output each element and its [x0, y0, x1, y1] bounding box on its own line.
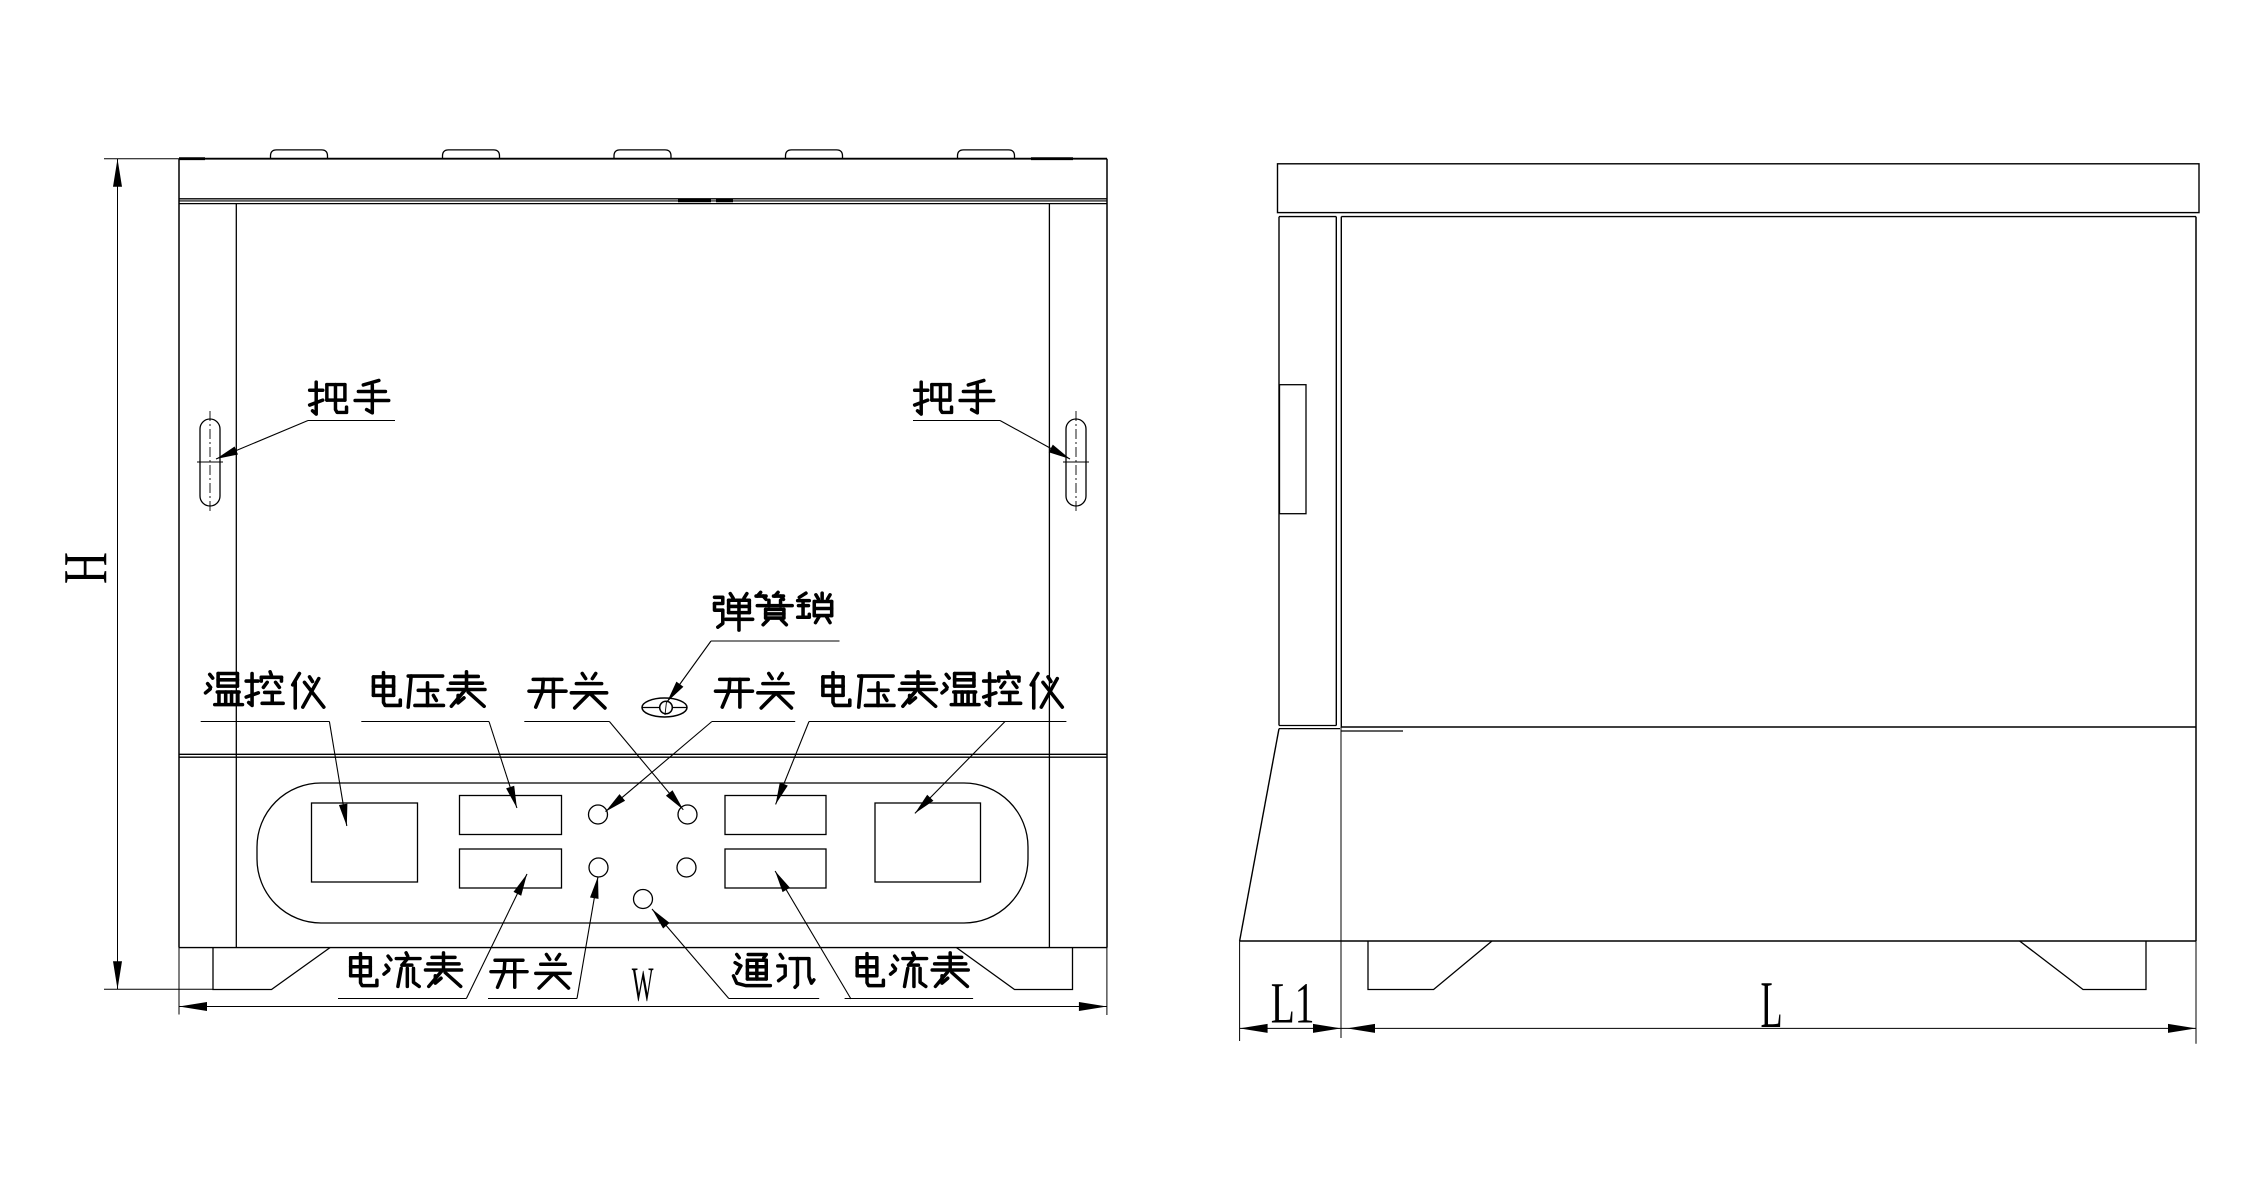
svg-text:L: L: [1760, 967, 1782, 1042]
svg-text:L1: L1: [1271, 971, 1315, 1035]
svg-text:W: W: [632, 958, 654, 1012]
svg-text:H: H: [51, 552, 120, 584]
